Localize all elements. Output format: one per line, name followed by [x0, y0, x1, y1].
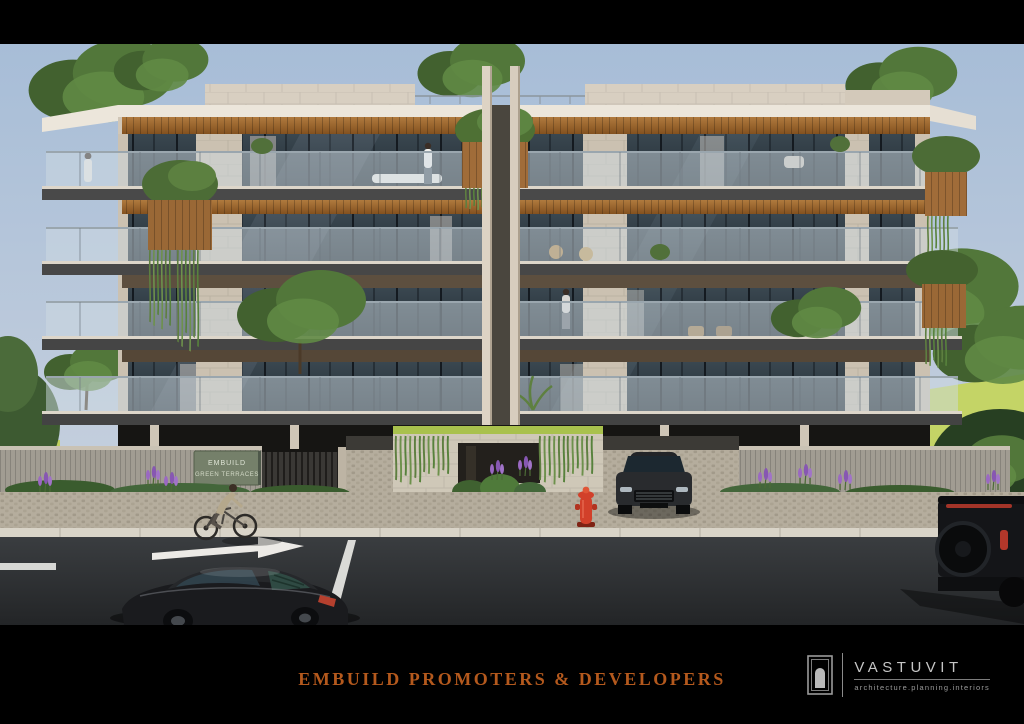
- logo-rule: [854, 679, 990, 680]
- caption-band: EMBUILD PROMOTERS & DEVELOPERS VASTUVIT …: [0, 625, 1024, 724]
- project-signboard: EMBUILD GREEN TERRACES: [194, 451, 261, 485]
- central-fins: [482, 66, 520, 454]
- render-scene: EMBUILD GREEN TERRACES: [0, 44, 1024, 625]
- apartment-building: [42, 66, 980, 454]
- sidewalk: [0, 492, 1024, 540]
- signboard-line2: GREEN TERRACES: [195, 472, 259, 478]
- signboard-line1: EMBUILD: [208, 460, 246, 467]
- edge-line: [0, 563, 56, 570]
- building-render: EMBUILD GREEN TERRACES: [0, 44, 1024, 625]
- arched-door-icon: [807, 655, 833, 695]
- render-frame: EMBUILD GREEN TERRACES: [0, 0, 1024, 724]
- curb: [0, 528, 1024, 537]
- logo-divider: [842, 653, 843, 697]
- logo-name: VASTUVIT: [854, 659, 990, 676]
- architect-logo: VASTUVIT architecture.planning.interiors: [807, 653, 990, 697]
- logo-tagline: architecture.planning.interiors: [854, 683, 990, 692]
